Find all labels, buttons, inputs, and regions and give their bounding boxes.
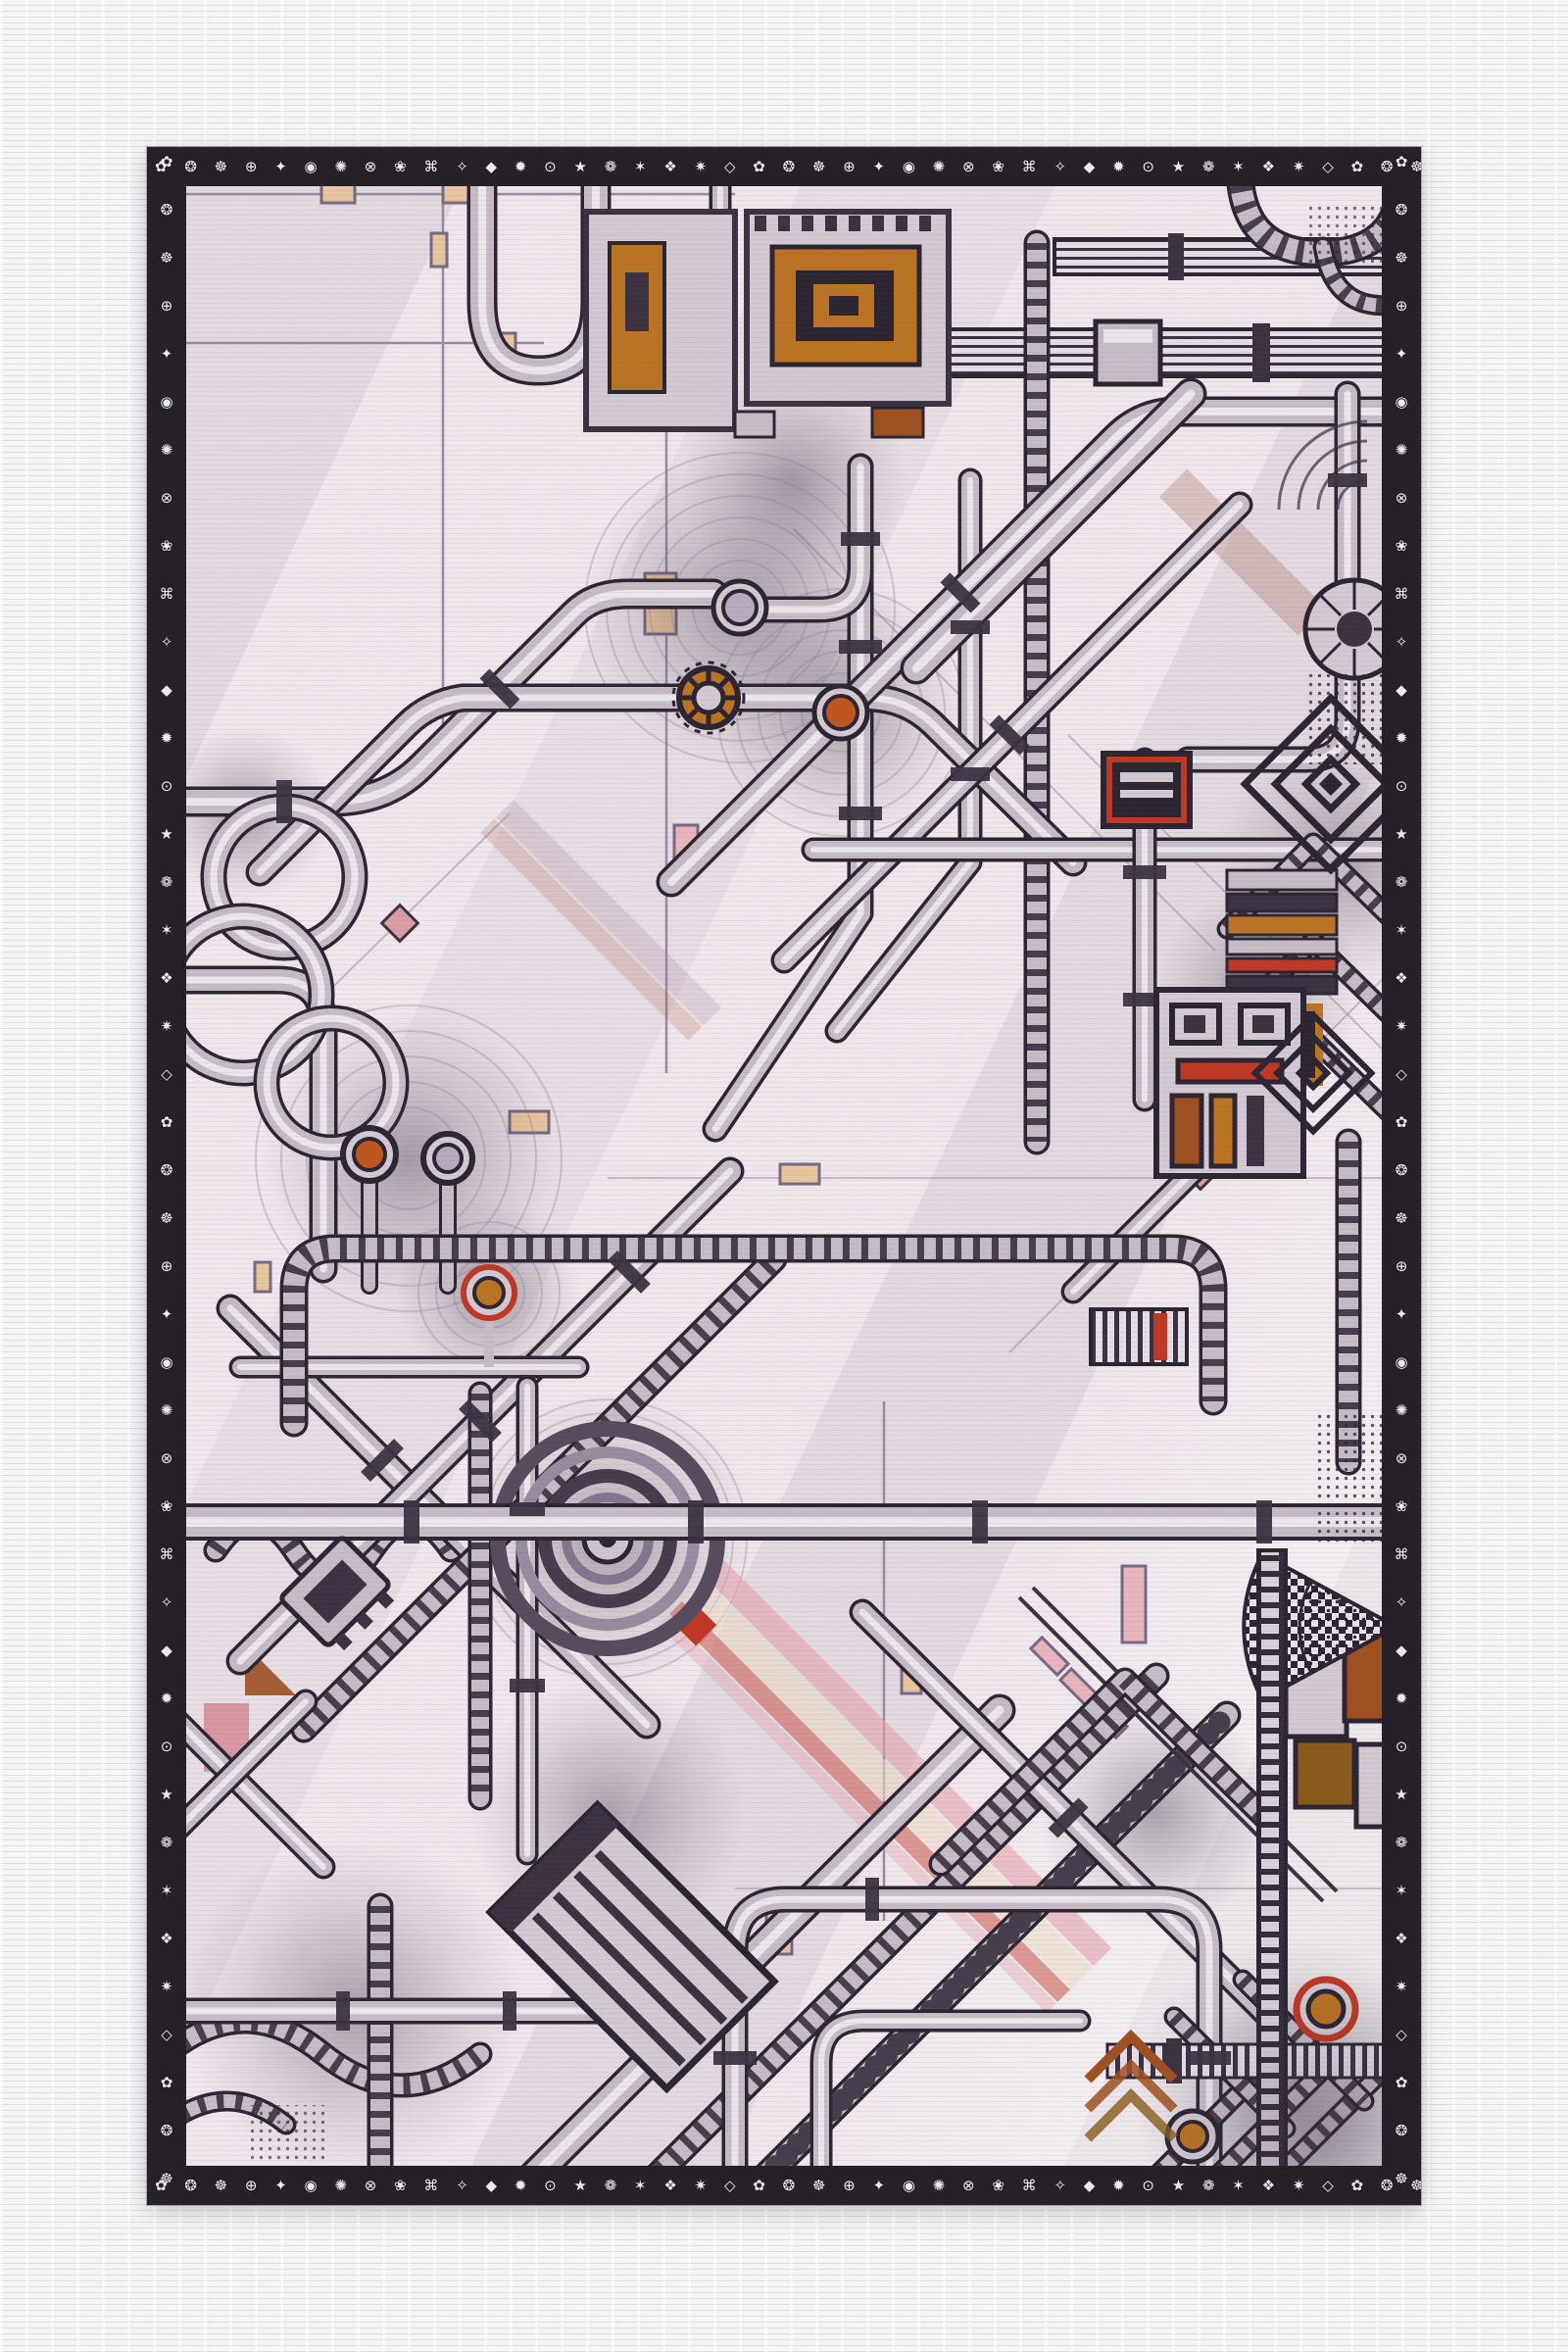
grain-texture xyxy=(186,186,1382,2166)
page: { "artwork": { "border": { "sequence": "… xyxy=(0,0,1568,2352)
ornamental-border-right: ✿ ❂ ☸ ⊕ ✦ ◉ ✺ ⊗ ❀ ⌘ ✧ ◆ ✹ ⊙ ★ ❁ ✶ ❖ ✷ ◇ … xyxy=(1382,147,1421,2205)
art-frame: ✿ ❂ ☸ ⊕ ✦ ◉ ✺ ⊗ ❀ ⌘ ✧ ◆ ✹ ⊙ ★ ❁ ✶ ❖ ✷ ◇ … xyxy=(147,147,1421,2205)
ornamental-border-bottom: ✿ ❂ ☸ ⊕ ✦ ◉ ✺ ⊗ ❀ ⌘ ✧ ◆ ✹ ⊙ ★ ❁ ✶ ❖ ✷ ◇ … xyxy=(147,2166,1421,2205)
paper-margin: ✿ ❂ ☸ ⊕ ✦ ◉ ✺ ⊗ ❀ ⌘ ✧ ◆ ✹ ⊙ ★ ❁ ✶ ❖ ✷ ◇ … xyxy=(0,0,1568,2352)
art-canvas xyxy=(186,186,1382,2166)
ornamental-border-top: ✿ ❂ ☸ ⊕ ✦ ◉ ✺ ⊗ ❀ ⌘ ✧ ◆ ✹ ⊙ ★ ❁ ✶ ❖ ✷ ◇ … xyxy=(147,147,1421,186)
pipes-illustration xyxy=(186,186,1382,2166)
ornamental-border-left: ✿ ❂ ☸ ⊕ ✦ ◉ ✺ ⊗ ❀ ⌘ ✧ ◆ ✹ ⊙ ★ ❁ ✶ ❖ ✷ ◇ … xyxy=(147,147,186,2205)
